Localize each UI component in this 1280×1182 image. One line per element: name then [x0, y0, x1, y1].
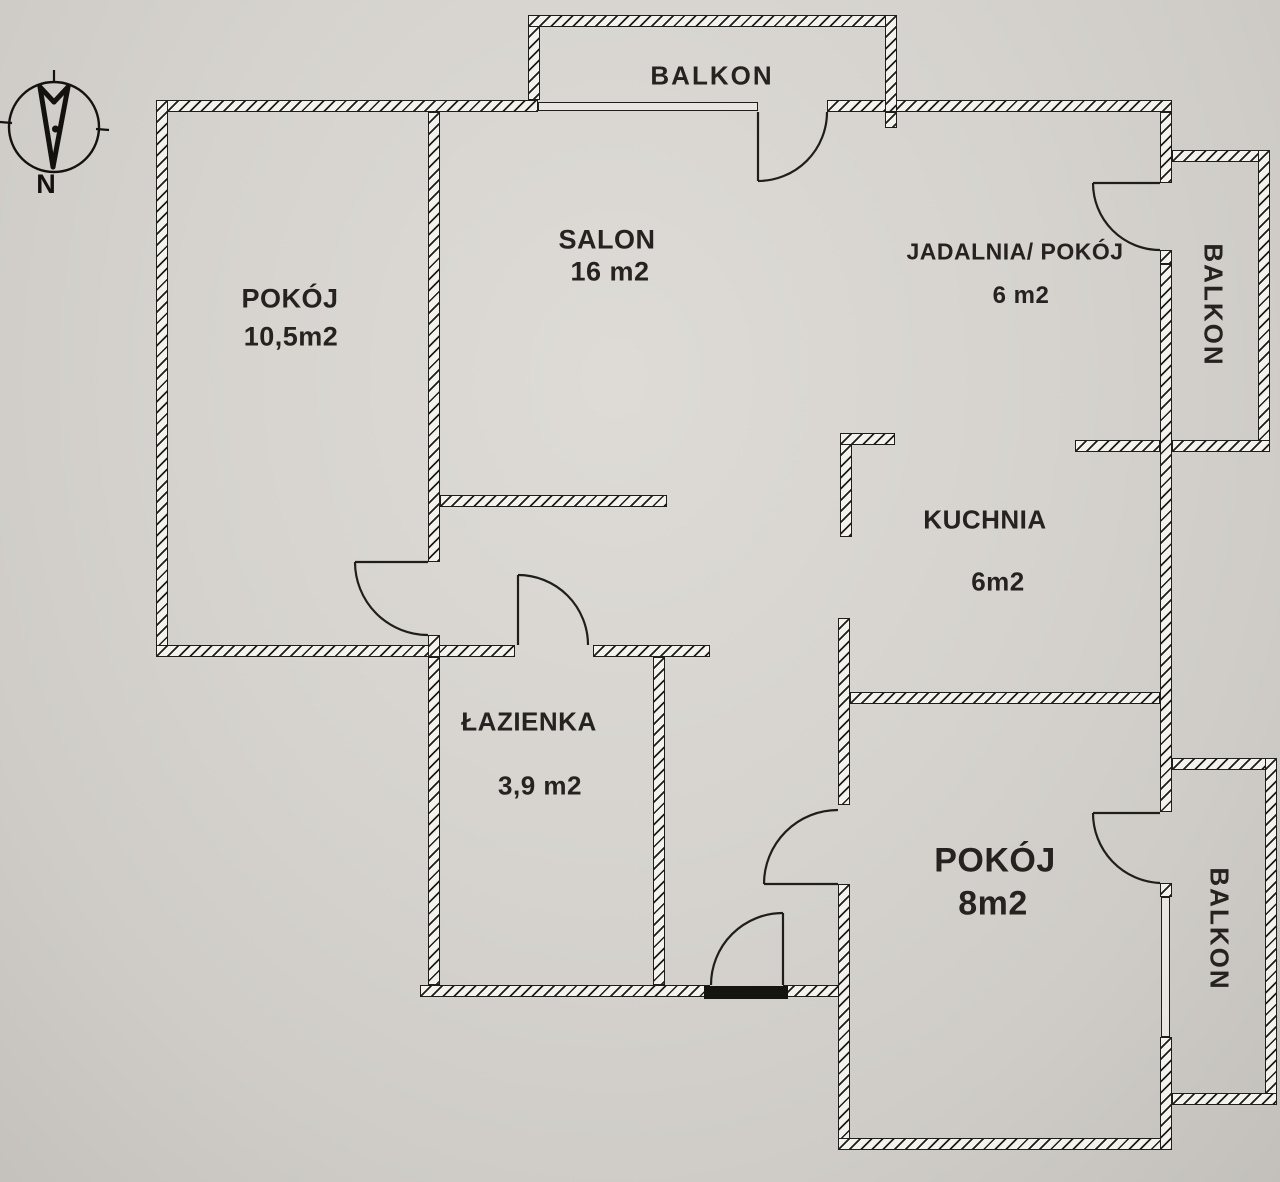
door-pokoj8: [764, 810, 838, 884]
door-salon-balkon: [758, 112, 827, 181]
label-jadalnia-area: 6 m2: [993, 282, 1050, 310]
label-pokoj8: POKÓJ: [934, 842, 1056, 881]
label-jadalnia: JADALNIA/ POKÓJ: [906, 239, 1123, 266]
floor-plan-page: N BALKON POKÓJ 10,5m2 SALON 16 m2 JADALN…: [0, 0, 1280, 1182]
door-entrance: [711, 913, 783, 985]
compass-north-icon: N: [0, 70, 109, 199]
label-balkon-top: BALKON: [650, 61, 773, 92]
label-salon-area: 16 m2: [570, 257, 649, 288]
label-lazienka-area: 3,9 m2: [498, 771, 582, 802]
entrance-door-slab: [704, 986, 788, 999]
plan-linework: N: [0, 0, 1280, 1182]
label-lazienka: ŁAZIENKA: [461, 707, 596, 738]
door-pokoj1: [355, 562, 428, 635]
label-kuchnia: KUCHNIA: [923, 505, 1046, 536]
label-pokoj1: POKÓJ: [241, 284, 338, 315]
door-lazienka: [518, 575, 588, 645]
label-balkon-right-lower: BALKON: [1204, 867, 1235, 990]
label-kuchnia-area: 6m2: [971, 567, 1025, 598]
door-pokoj8-balkon: [1093, 813, 1160, 883]
label-pokoj8-area: 8m2: [958, 885, 1028, 924]
compass-north-label: N: [36, 169, 56, 199]
label-salon: SALON: [559, 225, 656, 256]
label-balkon-right-upper: BALKON: [1198, 243, 1229, 366]
label-pokoj1-area: 10,5m2: [244, 322, 339, 353]
